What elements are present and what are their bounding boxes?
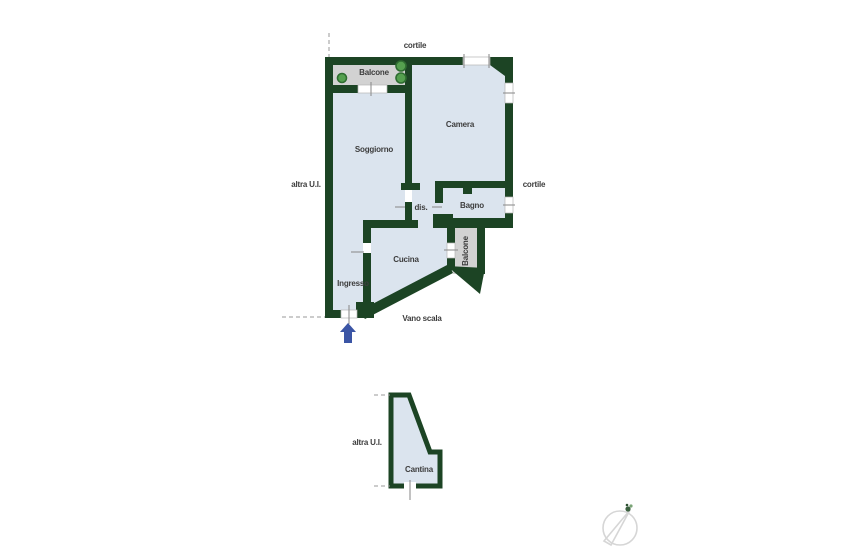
label-cellar-altra-ui: altra U.I. — [352, 438, 382, 447]
label-balcone-top: Balcone — [359, 68, 389, 77]
compass-north-mark — [625, 504, 632, 512]
floor-plan-canvas: cortile Balcone Camera Soggiorno altra U… — [0, 0, 853, 560]
label-dis: dis. — [415, 203, 428, 212]
floorplan-page: cortile Balcone Camera Soggiorno altra U… — [0, 0, 853, 560]
plant-icon — [396, 73, 406, 83]
plant-icon — [338, 74, 347, 83]
window-camera-top — [463, 57, 490, 65]
cellar-plan: altra U.I. Cantina — [352, 395, 440, 500]
label-vano-scala: Vano scala — [402, 314, 442, 323]
label-cortile-right: cortile — [523, 180, 546, 189]
balcony-door-top — [358, 85, 387, 93]
entrance-arrow-icon — [340, 323, 356, 343]
boundary-dashed-lines — [282, 33, 329, 317]
main-floor-plan: cortile Balcone Camera Soggiorno altra U… — [282, 33, 546, 343]
plant-icon — [396, 61, 406, 71]
door-ingresso-cucina — [363, 243, 371, 253]
label-cucina: Cucina — [393, 255, 419, 264]
label-balcone-right: Balcone — [461, 235, 470, 265]
compass-icon — [603, 504, 637, 545]
label-bagno: Bagno — [460, 201, 484, 210]
door-soggiorno-dis — [405, 190, 412, 202]
label-ingresso: Ingresso — [337, 279, 369, 288]
label-cantina: Cantina — [405, 465, 434, 474]
label-altra-ui: altra U.I. — [291, 180, 321, 189]
label-soggiorno: Soggiorno — [355, 145, 394, 154]
label-camera: Camera — [446, 120, 475, 129]
label-cortile-top: cortile — [404, 41, 427, 50]
